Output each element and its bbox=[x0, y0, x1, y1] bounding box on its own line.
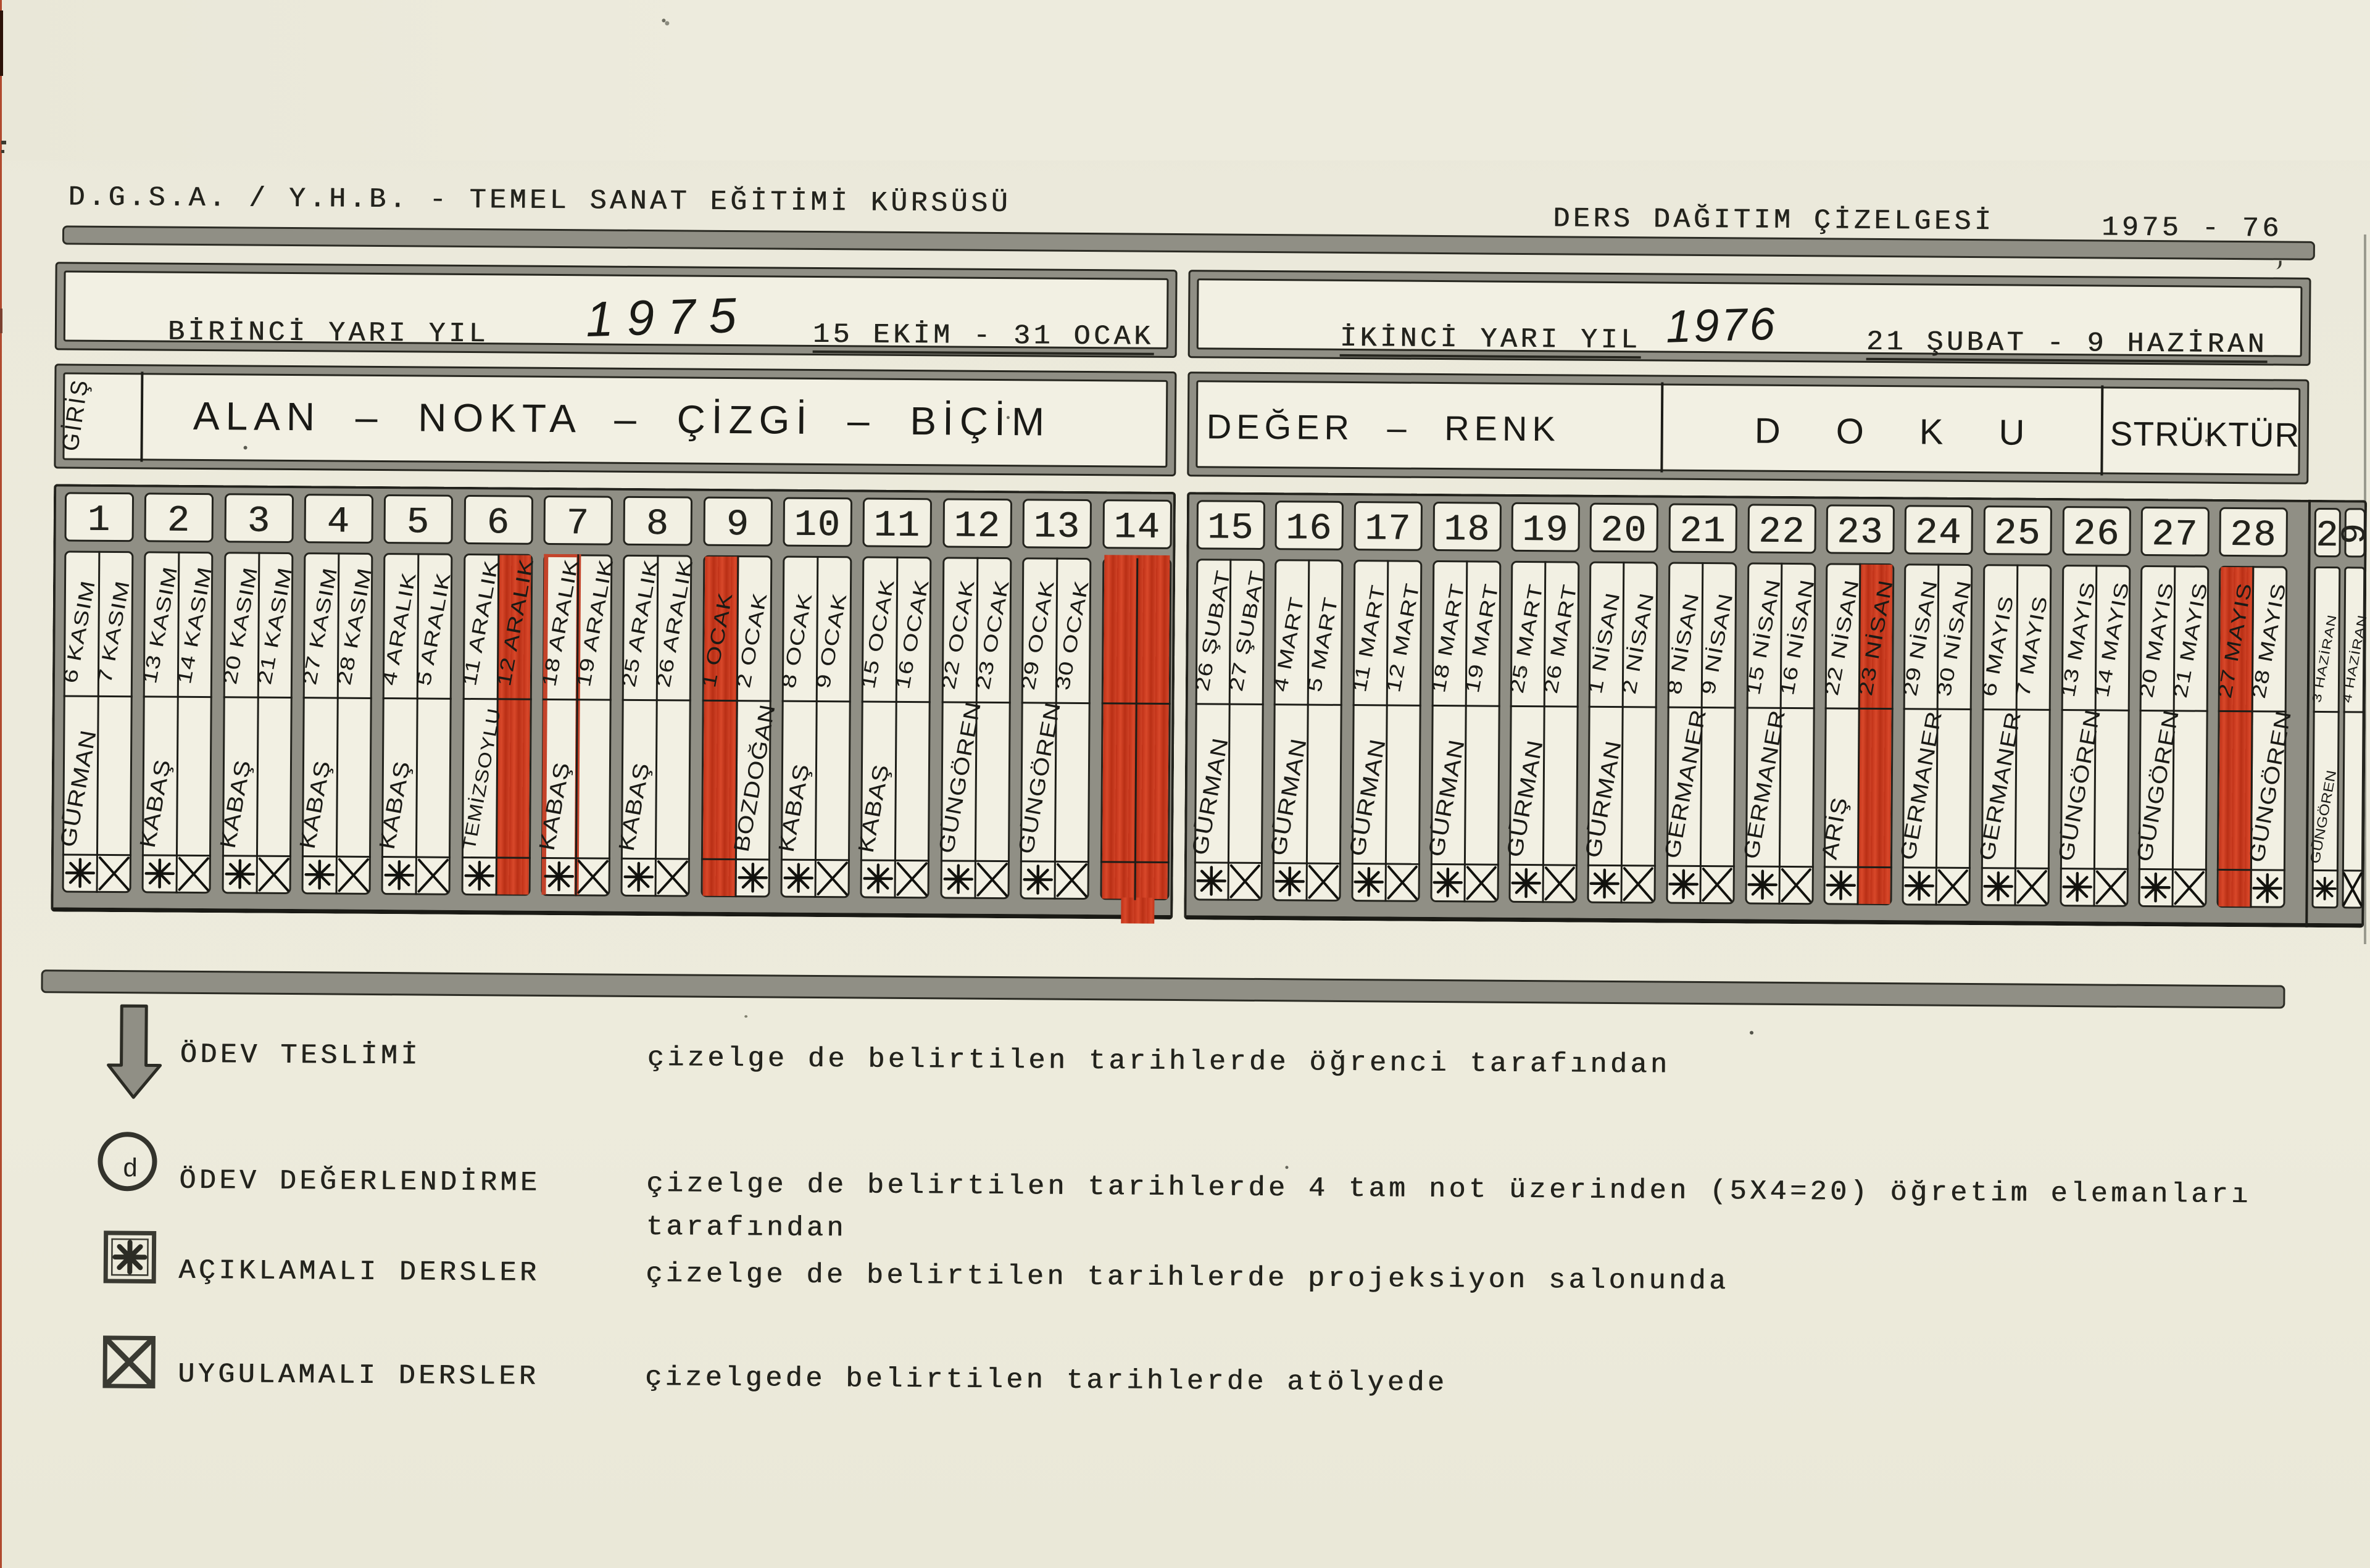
svg-text:d: d bbox=[122, 1155, 138, 1184]
